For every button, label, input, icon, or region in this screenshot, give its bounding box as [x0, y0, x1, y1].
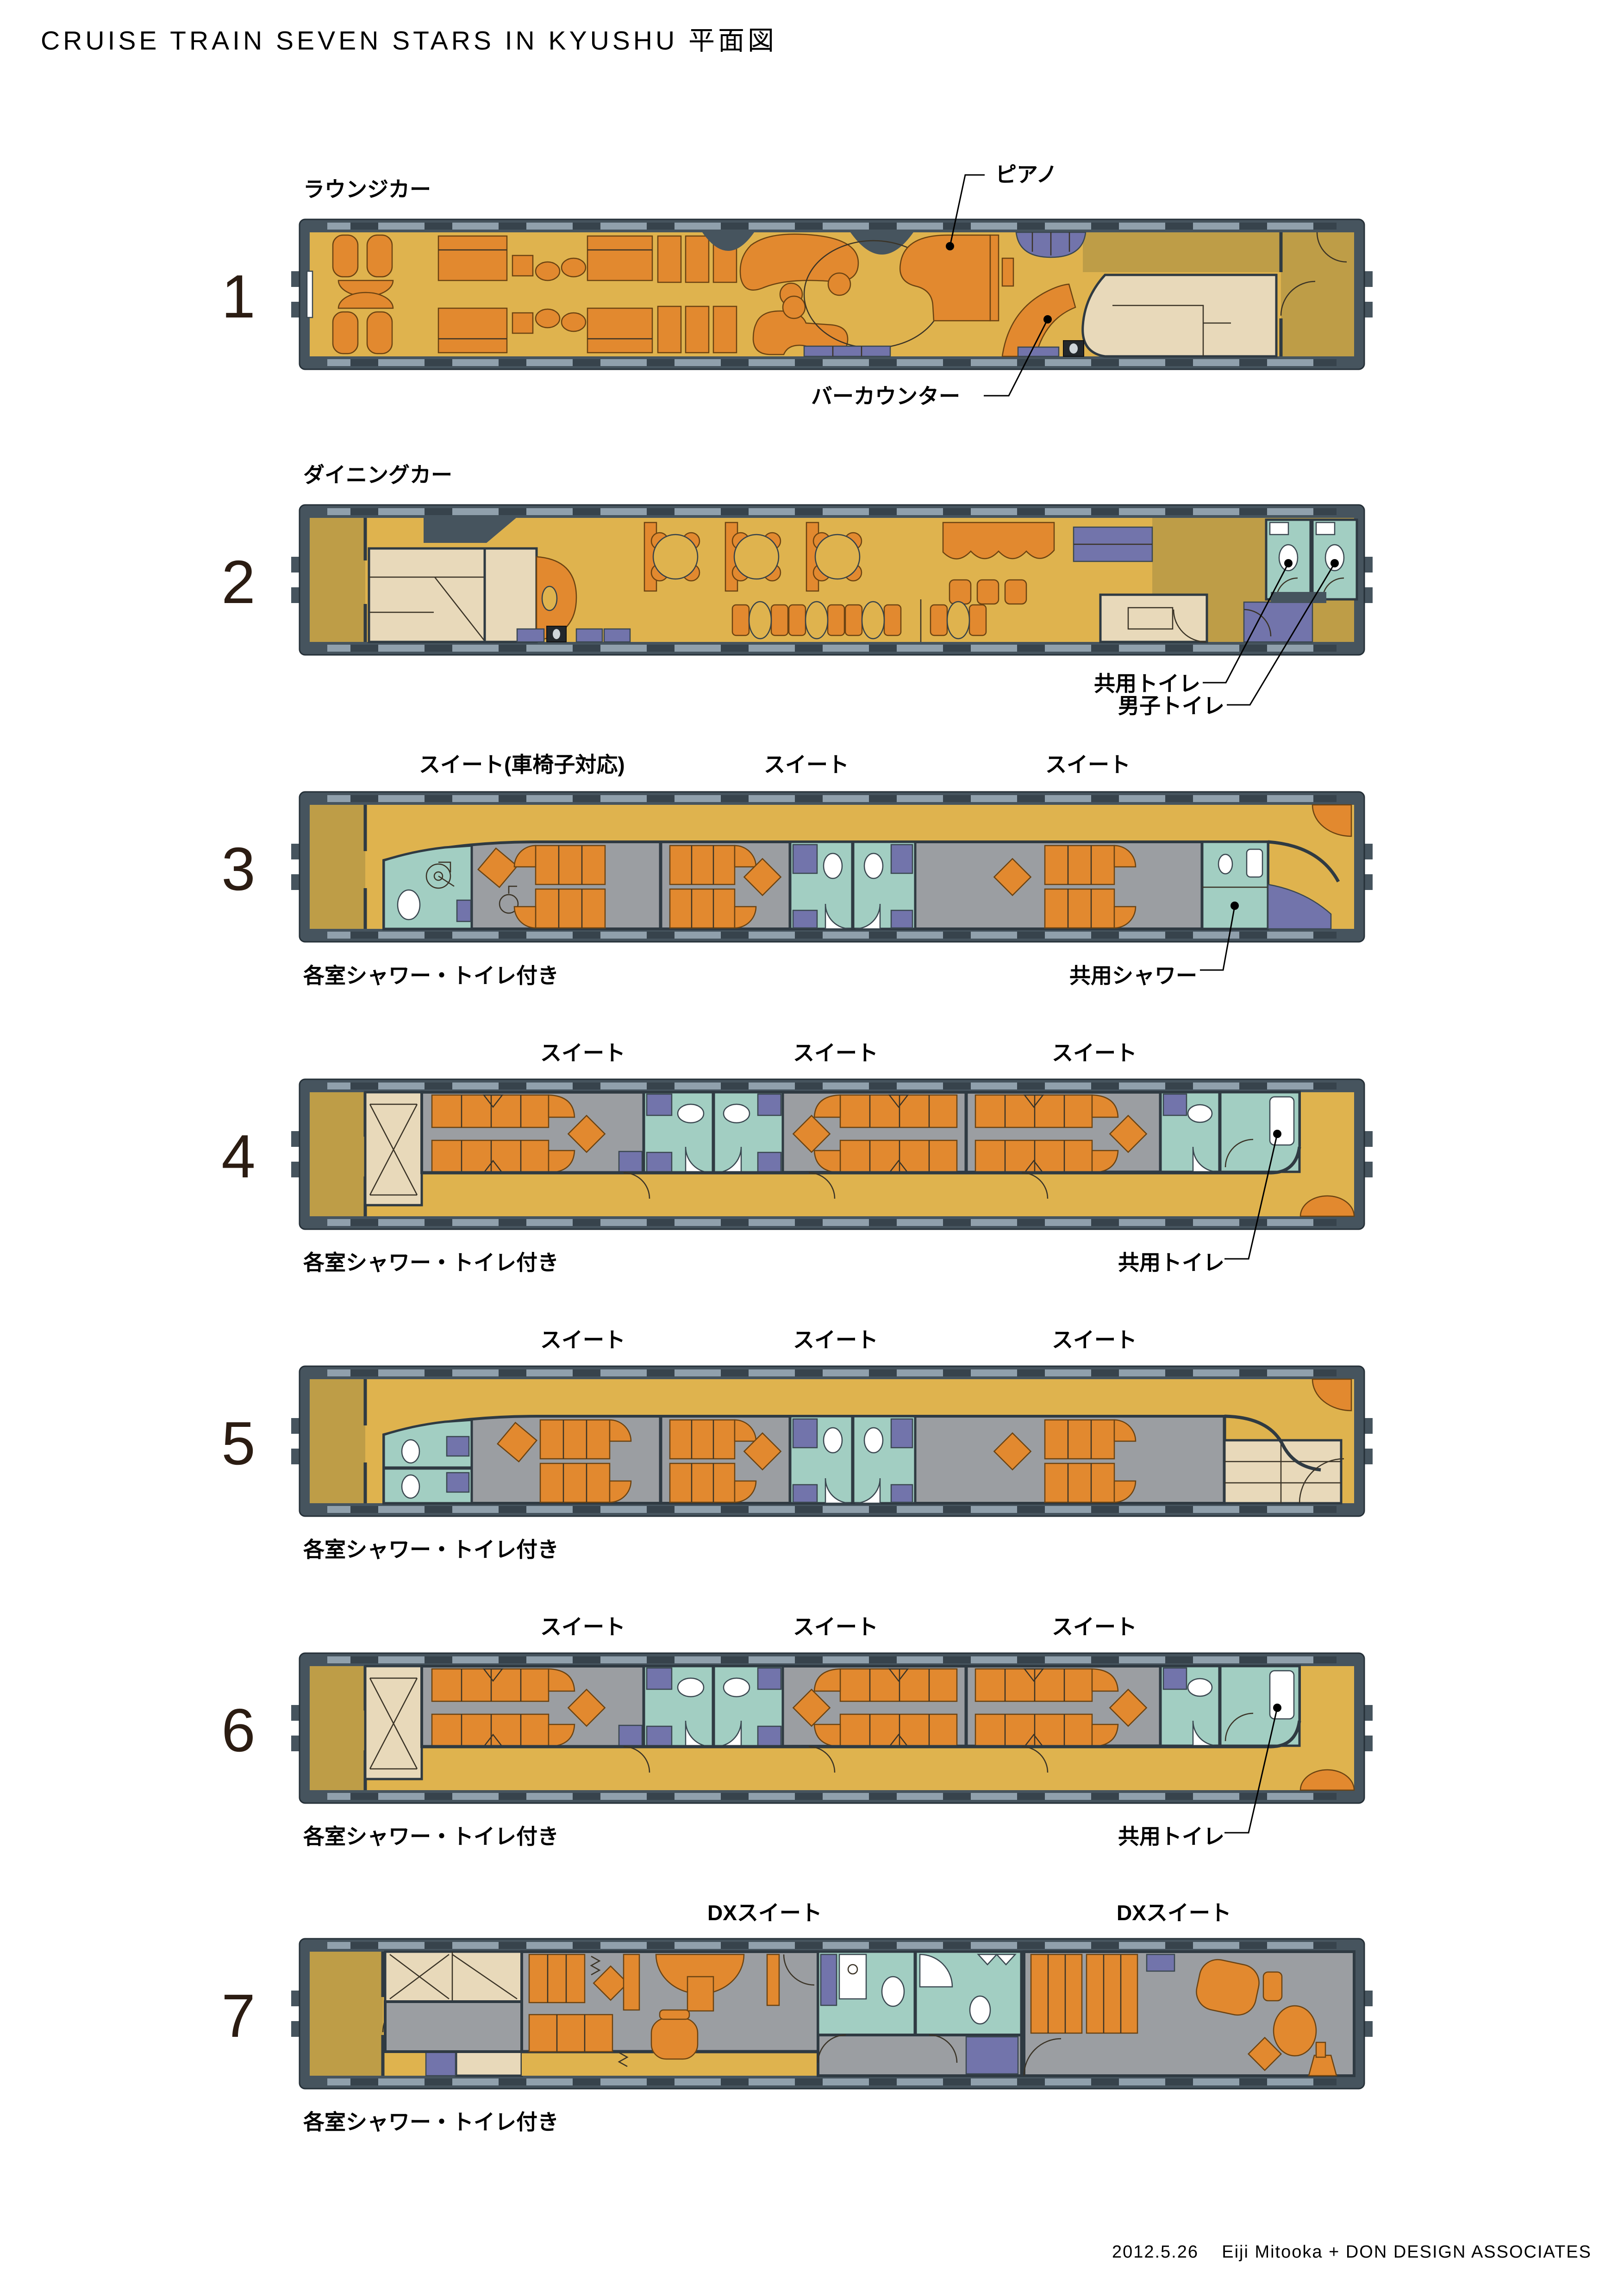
- car-5-floorplan: [291, 1366, 1373, 1516]
- car-2-floorplan: [291, 505, 1373, 705]
- car-6-floorplan: [291, 1653, 1373, 1833]
- car-1-floorplan: [291, 175, 1373, 396]
- car-6-number: 6: [204, 1695, 273, 1765]
- car-7-number: 7: [204, 1981, 273, 2051]
- car-7-suite-1-label: DXスイート: [707, 1901, 822, 1925]
- car-3-number: 3: [204, 834, 273, 904]
- car-3-floorplan: [291, 792, 1373, 970]
- car-5-note: 各室シャワー・トイレ付き: [303, 1538, 559, 1562]
- car-4-suite-1-label: スイート: [540, 1041, 625, 1065]
- car-4-suite-3-label: スイート: [1052, 1041, 1137, 1065]
- car-2-shared-toilet-label: 共用トイレ: [1094, 672, 1200, 696]
- car-3-suite-3-label: スイート: [1045, 753, 1131, 777]
- floorplan-page: CRUISE TRAIN SEVEN STARS IN KYUSHU 平面図 1…: [0, 0, 1624, 2296]
- car-4-floorplan: [291, 1079, 1373, 1259]
- car-4-number: 4: [204, 1121, 273, 1191]
- car-6-suite-3-label: スイート: [1052, 1615, 1137, 1639]
- car-1-number: 1: [204, 261, 273, 331]
- car-1-bar-label: バーカウンター: [811, 385, 960, 408]
- car-6-shared-toilet-label: 共用トイレ: [1118, 1825, 1224, 1848]
- car-5-number: 5: [204, 1408, 273, 1478]
- car-4-note: 各室シャワー・トイレ付き: [303, 1251, 559, 1275]
- car-4-shared-toilet-label: 共用トイレ: [1118, 1251, 1224, 1275]
- car-6-suite-1-label: スイート: [540, 1615, 625, 1639]
- car-6-suite-2-label: スイート: [793, 1615, 878, 1639]
- car-2-mens-toilet-label: 男子トイレ: [1118, 694, 1224, 718]
- car-2-number: 2: [204, 547, 273, 617]
- car-7-suite-2-label: DXスイート: [1117, 1901, 1231, 1925]
- car-1-name: ラウンジカー: [303, 178, 431, 201]
- car-4-suite-2-label: スイート: [793, 1041, 878, 1065]
- car-3-note: 各室シャワー・トイレ付き: [303, 964, 559, 988]
- car-5-suite-3-label: スイート: [1052, 1328, 1137, 1352]
- car-3-suite-1-label: スイート(車椅子対応): [419, 753, 625, 777]
- car-5-suite-2-label: スイート: [793, 1328, 878, 1352]
- car-7-floorplan: [291, 1939, 1373, 2089]
- car-2-name: ダイニングカー: [303, 463, 452, 487]
- car-5-suite-1-label: スイート: [540, 1328, 625, 1352]
- car-3-shared-shower-label: 共用シャワー: [1069, 964, 1197, 988]
- car-1-piano-label: ピアノ: [995, 163, 1057, 187]
- car-6-note: 各室シャワー・トイレ付き: [303, 1825, 559, 1848]
- car-3-suite-2-label: スイート: [764, 753, 849, 777]
- credit-footer: 2012.5.26 Eiji Mitooka + DON DESIGN ASSO…: [1112, 2242, 1592, 2262]
- car-7-note: 各室シャワー・トイレ付き: [303, 2110, 559, 2134]
- page-title: CRUISE TRAIN SEVEN STARS IN KYUSHU 平面図: [41, 19, 777, 57]
